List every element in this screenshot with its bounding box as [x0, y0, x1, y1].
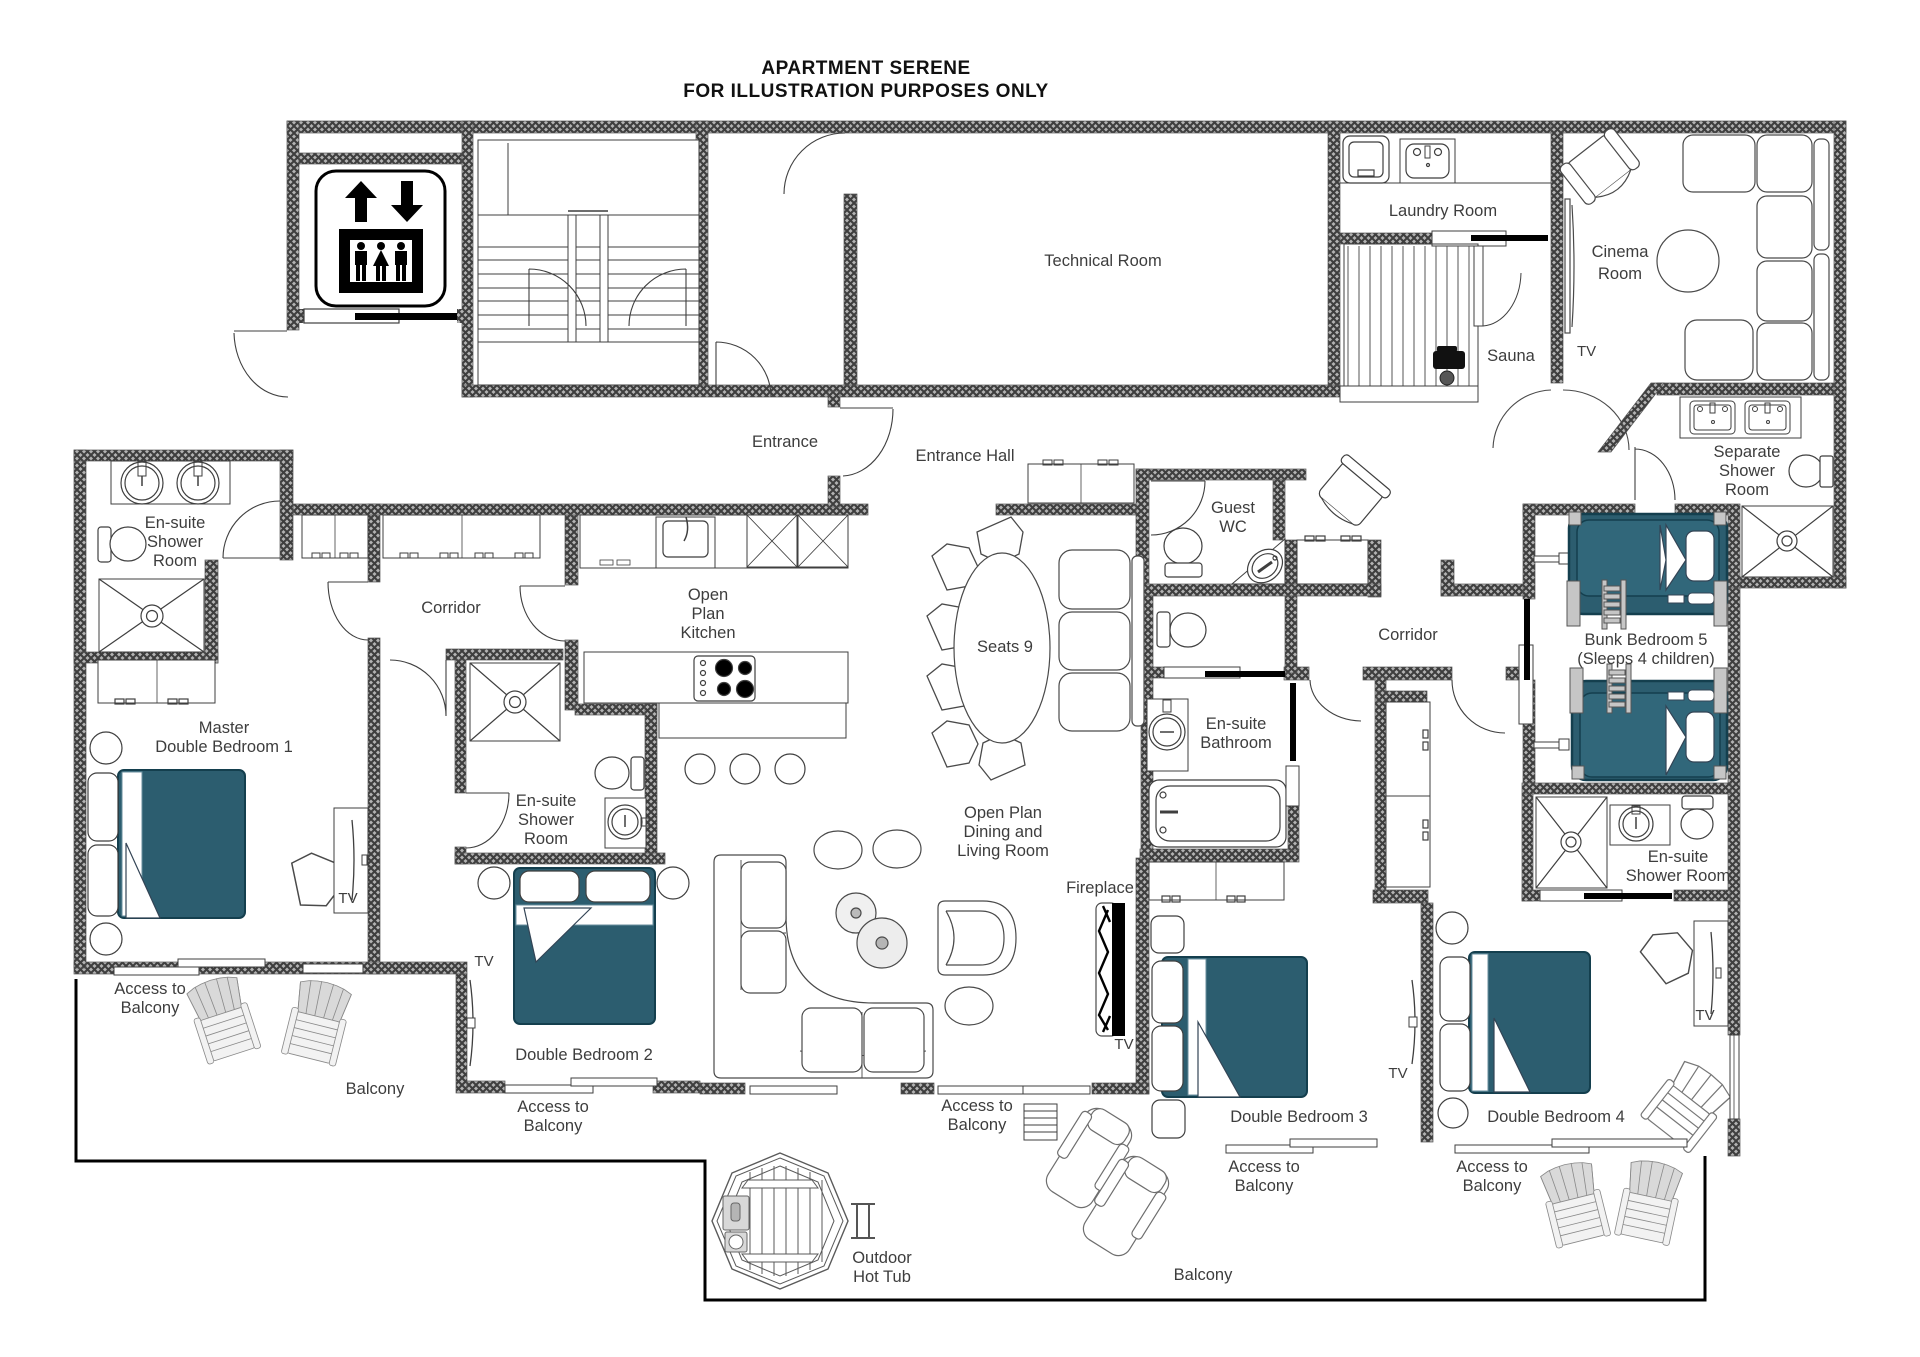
svg-text:Balcony: Balcony: [1235, 1177, 1294, 1195]
svg-text:Double Bedroom 2: Double Bedroom 2: [515, 1046, 653, 1064]
svg-text:Shower Room: Shower Room: [1626, 867, 1731, 885]
svg-text:Bunk Bedroom 5: Bunk Bedroom 5: [1585, 631, 1708, 649]
svg-text:Open: Open: [688, 586, 728, 604]
svg-text:TV: TV: [338, 890, 357, 907]
svg-text:TV: TV: [1695, 1007, 1714, 1024]
svg-text:Dining and: Dining and: [964, 823, 1043, 841]
svg-text:Guest: Guest: [1211, 499, 1255, 517]
svg-text:Separate: Separate: [1714, 443, 1781, 461]
svg-text:Access to: Access to: [1228, 1158, 1300, 1176]
svg-text:Entrance: Entrance: [752, 433, 818, 451]
svg-text:Outdoor: Outdoor: [852, 1249, 912, 1267]
svg-text:Balcony: Balcony: [948, 1116, 1007, 1134]
svg-text:(Sleeps 4 children): (Sleeps 4 children): [1577, 650, 1715, 668]
svg-text:Shower: Shower: [518, 811, 574, 829]
svg-text:Sauna: Sauna: [1487, 347, 1536, 365]
svg-text:Balcony: Balcony: [121, 999, 180, 1017]
svg-text:Double Bedroom 4: Double Bedroom 4: [1487, 1108, 1625, 1126]
svg-text:Master: Master: [199, 719, 250, 737]
svg-text:Balcony: Balcony: [1463, 1177, 1522, 1195]
svg-text:Bathroom: Bathroom: [1200, 734, 1272, 752]
svg-text:Technical Room: Technical Room: [1044, 252, 1161, 270]
svg-text:En-suite: En-suite: [1206, 715, 1267, 733]
svg-text:Seats 9: Seats 9: [977, 638, 1033, 656]
svg-text:En-suite: En-suite: [516, 792, 577, 810]
svg-text:Plan: Plan: [691, 605, 724, 623]
svg-text:Balcony: Balcony: [346, 1080, 405, 1098]
svg-text:Double Bedroom 1: Double Bedroom 1: [155, 738, 293, 756]
svg-text:Entrance Hall: Entrance Hall: [915, 447, 1014, 465]
svg-text:Cinema: Cinema: [1592, 243, 1650, 261]
svg-text:TV: TV: [1577, 343, 1596, 360]
svg-text:Access to: Access to: [941, 1097, 1013, 1115]
svg-text:Kitchen: Kitchen: [680, 624, 735, 642]
svg-text:Balcony: Balcony: [1174, 1266, 1233, 1284]
svg-text:Fireplace: Fireplace: [1066, 879, 1134, 897]
svg-text:Room: Room: [524, 830, 568, 848]
svg-text:Access to: Access to: [114, 980, 186, 998]
svg-text:Access to: Access to: [1456, 1158, 1528, 1176]
svg-text:APARTMENT SERENE: APARTMENT SERENE: [761, 58, 970, 79]
svg-text:TV: TV: [1388, 1065, 1407, 1082]
svg-text:Room: Room: [1598, 265, 1642, 283]
svg-text:Access to: Access to: [517, 1098, 589, 1116]
svg-text:WC: WC: [1219, 518, 1247, 536]
svg-text:Living Room: Living Room: [957, 842, 1049, 860]
svg-text:Room: Room: [1725, 481, 1769, 499]
svg-text:Corridor: Corridor: [421, 599, 481, 617]
svg-text:Laundry Room: Laundry Room: [1389, 202, 1497, 220]
svg-text:Hot Tub: Hot Tub: [853, 1268, 911, 1286]
svg-text:Open Plan: Open Plan: [964, 804, 1042, 822]
svg-text:Room: Room: [153, 552, 197, 570]
svg-text:FOR ILLUSTRATION PURPOSES ONLY: FOR ILLUSTRATION PURPOSES ONLY: [683, 81, 1048, 102]
svg-text:TV: TV: [1114, 1036, 1133, 1053]
svg-text:Corridor: Corridor: [1378, 626, 1438, 644]
svg-text:Double Bedroom 3: Double Bedroom 3: [1230, 1108, 1368, 1126]
svg-text:Shower: Shower: [147, 533, 203, 551]
svg-text:TV: TV: [474, 953, 493, 970]
svg-text:Shower: Shower: [1719, 462, 1775, 480]
svg-text:En-suite: En-suite: [1648, 848, 1709, 866]
svg-text:Balcony: Balcony: [524, 1117, 583, 1135]
svg-text:En-suite: En-suite: [145, 514, 206, 532]
